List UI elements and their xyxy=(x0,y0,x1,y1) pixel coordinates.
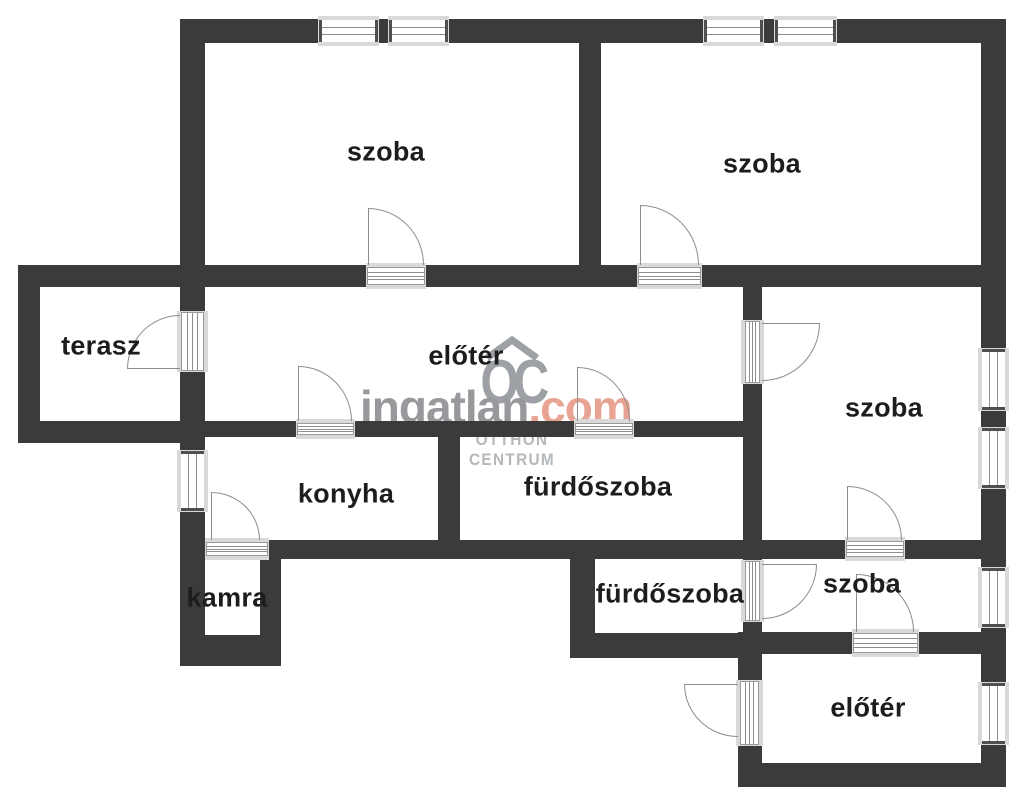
door-threshold xyxy=(296,419,355,439)
door-jamb xyxy=(740,681,759,745)
wall-eloter-bottom-band xyxy=(205,421,762,437)
wall-eloter-top-band xyxy=(205,265,1006,287)
door-threshold xyxy=(177,311,208,372)
door-jamb xyxy=(367,267,425,285)
window-symbol xyxy=(177,450,208,512)
door-swing-arc xyxy=(211,492,260,540)
door-threshold xyxy=(741,320,764,384)
window-glass xyxy=(181,451,204,511)
room-label-furdoszoba-upper: fürdőszoba xyxy=(524,472,673,503)
wall-furdo-lower-bottom xyxy=(570,633,762,658)
door-threshold xyxy=(736,680,763,746)
otthon-centrum-line2: CENTRUM xyxy=(458,451,566,468)
door-threshold xyxy=(205,538,269,560)
wall-top xyxy=(180,19,1006,43)
door-swing-arc xyxy=(577,367,630,421)
room-label-terasz: terasz xyxy=(61,331,141,362)
window-glass xyxy=(982,683,1005,744)
room-label-szoba-lower: szoba xyxy=(823,569,901,600)
wall-konyha-furdo-divider xyxy=(438,437,460,541)
door-jamb xyxy=(846,541,904,557)
door-threshold xyxy=(845,537,905,561)
door-swing-arc xyxy=(368,208,424,265)
room-label-szoba-right: szoba xyxy=(845,393,923,424)
window-glass xyxy=(319,20,378,42)
room-label-furdoszoba-lower: fürdőszoba xyxy=(596,579,745,610)
wall-bottom xyxy=(738,763,1006,787)
window-symbol xyxy=(774,16,837,46)
door-swing-arc xyxy=(684,684,738,737)
wall-kamra-bottom xyxy=(180,635,281,666)
wall-terasz-left xyxy=(18,265,40,443)
window-glass xyxy=(389,20,448,42)
door-jamb xyxy=(575,423,633,435)
window-symbol xyxy=(978,567,1009,628)
door-jamb xyxy=(206,542,268,556)
room-label-eloter-bottom: előtér xyxy=(830,693,905,724)
room-label-szoba-top-right: szoba xyxy=(723,149,801,180)
window-symbol xyxy=(388,16,449,46)
window-glass xyxy=(982,568,1005,627)
door-jamb xyxy=(181,312,204,371)
window-glass xyxy=(982,349,1005,410)
room-label-eloter-main: előtér xyxy=(428,341,503,372)
door-swing-arc xyxy=(640,205,699,265)
floor-plan: OC OTTHON CENTRUM ingatlan.com xyxy=(0,0,1024,807)
window-symbol xyxy=(703,16,764,46)
door-swing-arc xyxy=(847,486,902,540)
door-swing-arc xyxy=(762,323,820,381)
door-jamb xyxy=(297,423,354,435)
window-symbol xyxy=(978,348,1009,411)
door-jamb xyxy=(638,267,701,285)
window-symbol xyxy=(978,427,1009,489)
window-symbol xyxy=(318,16,379,46)
wall-terasz-bottom xyxy=(18,421,180,443)
room-label-szoba-top-left: szoba xyxy=(347,137,425,168)
room-label-kamra: kamra xyxy=(186,583,267,614)
door-threshold xyxy=(574,419,634,439)
door-jamb xyxy=(745,561,760,621)
window-symbol xyxy=(978,682,1009,745)
door-swing-arc xyxy=(762,564,817,619)
door-jamb xyxy=(853,633,918,653)
door-threshold xyxy=(852,629,919,657)
wall-top-rooms-divider xyxy=(579,43,601,267)
window-glass xyxy=(704,20,763,42)
door-threshold xyxy=(366,263,426,289)
window-glass xyxy=(982,428,1005,488)
door-threshold xyxy=(637,263,702,289)
door-swing-arc xyxy=(298,366,352,421)
wall-terasz-top xyxy=(18,265,180,287)
door-jamb xyxy=(745,321,760,383)
room-label-konyha: konyha xyxy=(298,479,394,510)
window-glass xyxy=(775,20,836,42)
